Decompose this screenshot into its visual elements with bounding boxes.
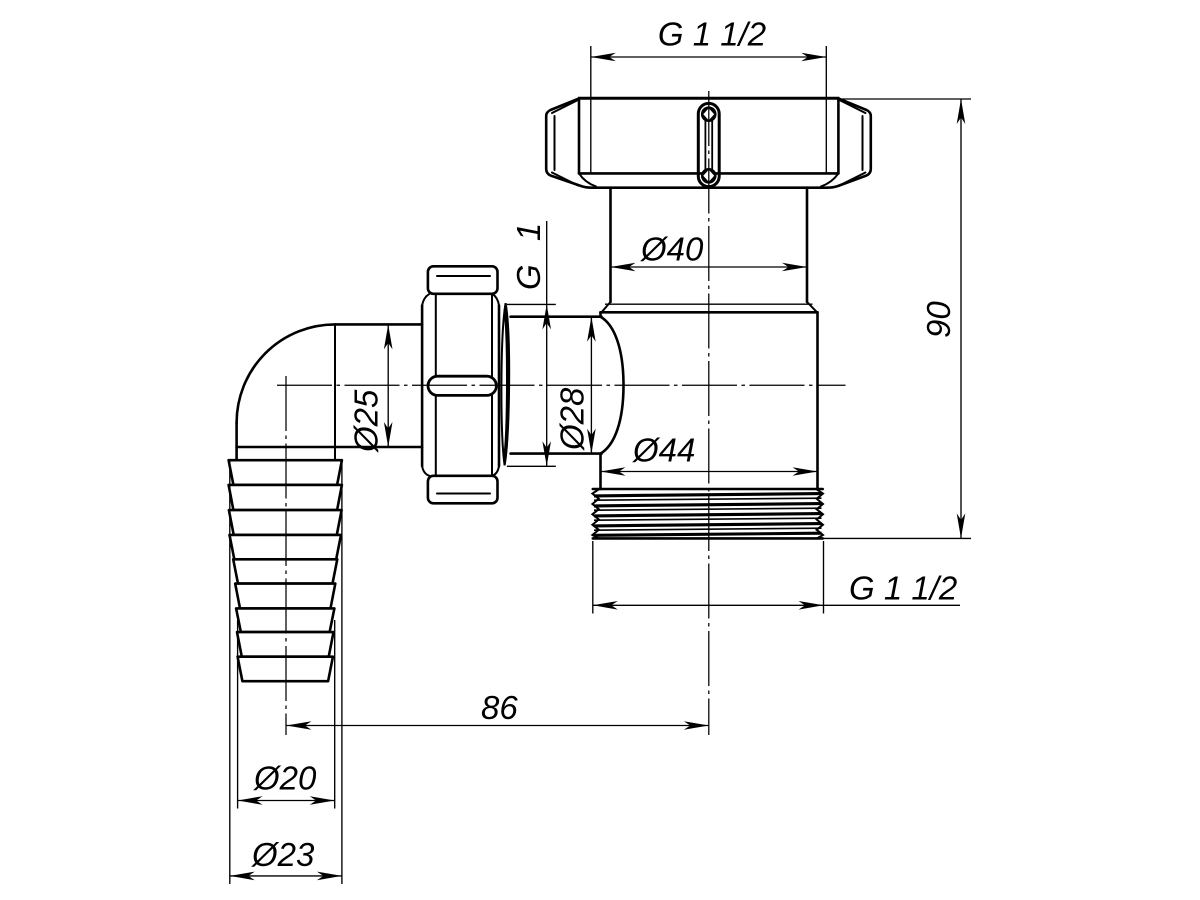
svg-text:Ø20: Ø20 — [253, 760, 317, 797]
svg-text:Ø44: Ø44 — [632, 432, 695, 469]
svg-text:Ø40: Ø40 — [640, 230, 704, 267]
svg-text:G 1 1/2: G 1 1/2 — [849, 570, 957, 607]
svg-text:86: 86 — [481, 689, 518, 726]
svg-text:Ø23: Ø23 — [251, 836, 315, 873]
svg-text:Ø28: Ø28 — [554, 387, 591, 451]
svg-text:Ø25: Ø25 — [347, 389, 384, 453]
svg-text:90: 90 — [920, 301, 957, 338]
svg-text:G 1: G 1 — [510, 216, 547, 290]
svg-text:G 1 1/2: G 1 1/2 — [658, 16, 766, 53]
